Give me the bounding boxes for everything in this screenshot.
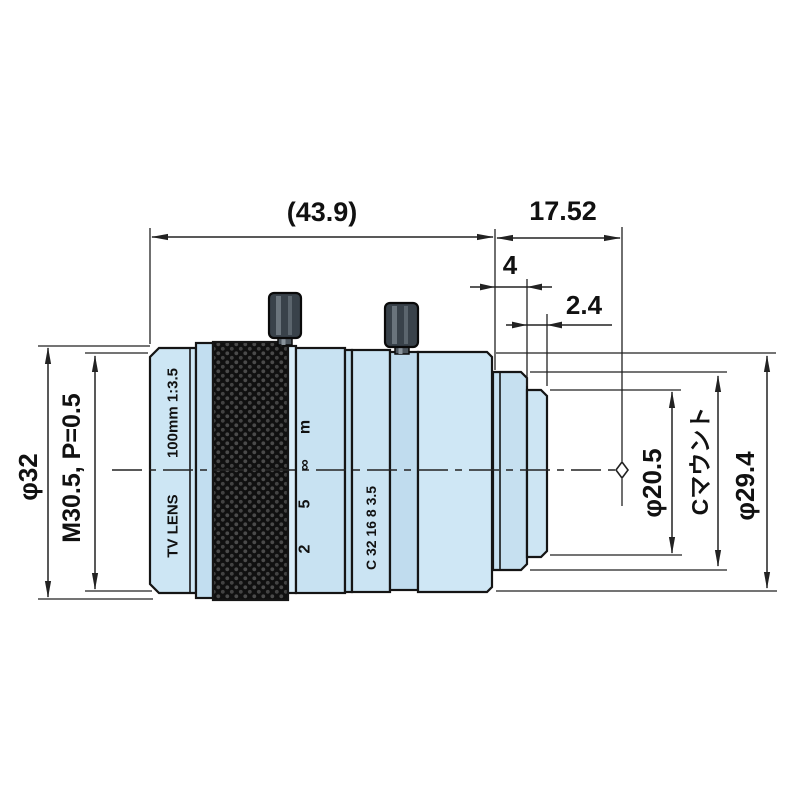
front-screw-cap-stripe: [276, 296, 281, 335]
lock-screw-rear: [385, 303, 418, 354]
rear-screw-cap-stripe2: [404, 306, 408, 344]
rear-barrel: [418, 352, 492, 592]
dim-label-filter-thread: M30.5, P=0.5: [58, 393, 86, 542]
rear-screw-cap: [385, 303, 418, 347]
marking-brand: TV LENS: [165, 494, 182, 557]
aperture-scale-markings: C 32 16 8 3.5: [363, 486, 379, 570]
dim-label-overall-length: (43.9): [287, 197, 358, 227]
dim-label-thread-protrusion: 2.4: [566, 290, 603, 320]
lock-screw-front: [269, 293, 301, 345]
front-screw-cap-stripe2: [288, 296, 292, 335]
marking-spec: 100mm 1:3.5: [165, 368, 182, 458]
drawing-canvas: (43.9) 17.52 4 2.4 φ32 M30.5, P=0.5 φ20.…: [0, 0, 800, 800]
dim-label-rear-od: φ29.4: [730, 451, 760, 521]
focus-scale-unit-m: m: [297, 420, 314, 434]
image-plane-marker: [616, 462, 628, 478]
dim-label-thread-od: φ20.5: [637, 448, 667, 517]
front-screw-cap: [269, 293, 301, 338]
rear-screw-cap-stripe: [392, 306, 397, 344]
c-mount-thread: [527, 390, 547, 557]
aperture-grip-ring: [390, 352, 418, 590]
dim-label-flange-width: 4: [503, 250, 518, 280]
dim-label-front-od: φ32: [13, 453, 43, 501]
lens-dimension-drawing: (43.9) 17.52 4 2.4 φ32 M30.5, P=0.5 φ20.…: [0, 0, 800, 800]
focus-scale-infinity: ∞: [297, 459, 314, 470]
focus-scale-2: 2: [297, 544, 314, 553]
dim-label-flange-focal: 17.52: [529, 196, 597, 226]
lens-body: [150, 342, 547, 600]
focus-scale-5: 5: [297, 499, 314, 508]
dim-label-mount: Cマウント: [687, 407, 713, 516]
focus-knurl-ring: [213, 342, 288, 600]
mount-flange: [493, 372, 527, 570]
